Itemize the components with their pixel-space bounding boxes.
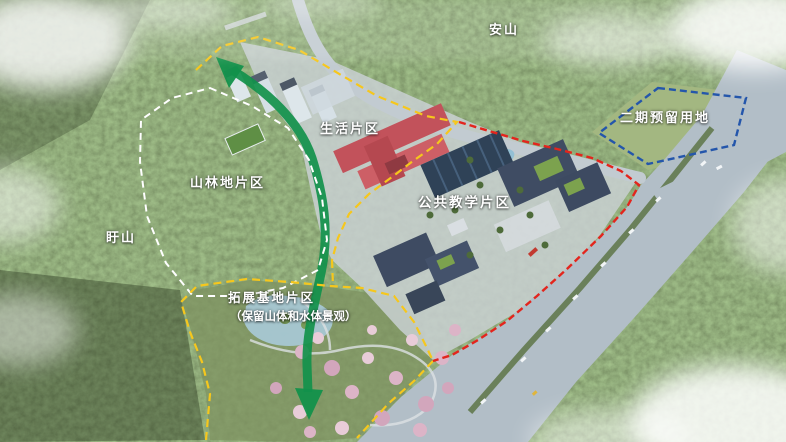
label-teaching-zone: 公共教学片区: [418, 197, 511, 211]
label-forest-zone: 山林地片区: [190, 177, 265, 190]
label-phase2-reserved-zone: 二期预留用地: [620, 112, 710, 125]
label-mountain-anshan: 安山: [489, 24, 519, 37]
masterplan-canvas: [0, 0, 786, 442]
campus-masterplan-rendering: 安山 盱山 山林地片区 生活片区 公共教学片区 二期预留用地 拓展基地片区 （保…: [0, 0, 786, 442]
label-living-zone: 生活片区: [320, 123, 380, 136]
atmospheric-haze: [0, 0, 786, 60]
label-expansion-zone-note: （保留山体和水体景观）: [230, 311, 357, 323]
label-expansion-zone: 拓展基地片区: [228, 292, 315, 305]
label-mountain-xushan: 盱山: [106, 232, 136, 245]
